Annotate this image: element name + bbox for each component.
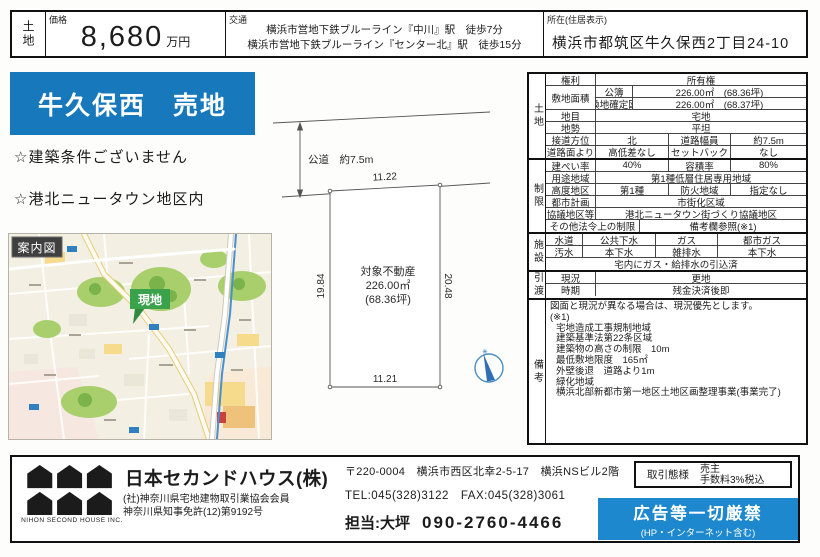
ad-prohibition-banner: 広告等一切厳禁 (HP・インターネット含む) (598, 498, 798, 540)
lot-center-text: 対象不動産 226.00㎡ (68.36坪) (361, 264, 416, 306)
other-restrictions-value: 備考欄参照(※1) (640, 220, 806, 232)
row-road-level: 道路面より 高低差なし セットバック なし (546, 146, 806, 158)
city-planning-value: 市街化区域 (596, 196, 806, 207)
row-sewage: 汚水 本下水 雑排水 本下水 (546, 246, 806, 258)
row-road-facing: 接道方位 北 道路幅員 約7.5m (546, 134, 806, 146)
row-land-category: 地目 宅地 (546, 110, 806, 122)
group-handover: 引渡 現況 更地 時期 残金決済後即 (529, 272, 806, 300)
remark-item: 外壁後退 道路より1m (550, 367, 802, 378)
contact-person: 担当:大坪 (345, 512, 410, 533)
row-height-district: 高度地区 第1種 防火地域 指定なし (546, 184, 806, 196)
area-map: 現地 案内図 (8, 233, 272, 440)
company-logo-icon (24, 465, 119, 515)
registry-label: 公簿 (596, 86, 633, 97)
row-utilities-note: 宅内にガス・給排水の引込済 (546, 258, 806, 270)
access-cell: 交通 横浜市営地下鉄ブルーライン『中川』駅 徒歩7分 横浜市営地下鉄ブルーライン… (226, 12, 544, 56)
zoning-value: 第1種低層住居専用地域 (596, 172, 806, 183)
row-rights: 権利 所有権 (546, 74, 806, 86)
price-cell: 価格 8,680万円 (46, 12, 226, 56)
council-district-value: 港北ニュータウン街づくり協議地区 (596, 208, 806, 219)
site-area-registry-row: 公簿 226.00㎡ (68.36坪) (596, 86, 806, 98)
row-terrain: 地勢 平坦 (546, 122, 806, 134)
contact-row: 担当:大坪 090-2760-4466 (345, 512, 563, 533)
map-illustration: 現地 案内図 (9, 234, 271, 439)
dim-right: 20.48 (442, 273, 453, 298)
rights-value: 所有権 (596, 74, 806, 85)
far-label: 容積率 (669, 160, 731, 171)
replot-label: 換地確定図 (596, 98, 633, 110)
row-handover-time: 時期 残金決済後即 (546, 284, 806, 296)
road-width-label2: 道路幅員 (669, 134, 731, 145)
price-value: 8,680 (81, 21, 164, 53)
road-width-label: 公道 約7.5m (308, 153, 374, 166)
replot-value: 226.00㎡ (68.37坪) (633, 98, 806, 110)
far-value: 80% (731, 160, 806, 171)
group-facilities-label: 施設 (529, 234, 546, 270)
setback-label: セットバック (669, 146, 731, 158)
deal-type-value: 売主 (700, 464, 790, 475)
deal-fee: 手数料3%税込 (700, 475, 790, 486)
tel-fax: TEL:045(328)3122 FAX:045(328)3061 (345, 487, 565, 503)
compass-north-mark: ✳ (482, 348, 488, 356)
fire-zone-value: 指定なし (731, 184, 806, 195)
company-address: 〒220-0004 横浜市西区北幸2-5-17 横浜NSビル2階 (345, 463, 619, 479)
deal-type-box: 取引態様 売主 手数料3%税込 (634, 461, 792, 488)
group-remarks: 備考 図面と現況が異なる場合は、現況優先とします。 (※1) 宅地造成工事規制地… (529, 300, 806, 443)
coverage-label: 建ぺい率 (546, 160, 596, 171)
dim-bottom: 11.21 (373, 374, 398, 385)
license-number: 神奈川県知事免許(12)第9192号 (123, 507, 290, 520)
handover-time-value: 残金決済後即 (596, 284, 806, 296)
location-label: 所在(住居表示) (547, 13, 607, 26)
lot-name: 対象不動産 (361, 264, 416, 278)
site-area-label: 敷地面積 (546, 86, 596, 109)
land-category-value: 宅地 (596, 110, 806, 121)
row-site-area: 敷地面積 公簿 226.00㎡ (68.36坪) 換地確定図 226.00㎡ (… (546, 86, 806, 110)
water-label: 水道 (546, 234, 583, 245)
height-district-label: 高度地区 (546, 184, 596, 195)
road-facing-label: 接道方位 (546, 134, 596, 145)
sewage-value: 本下水 (583, 246, 656, 257)
group-remarks-label: 備考 (529, 300, 546, 443)
road-width-value: 約7.5m (731, 134, 806, 145)
other-restrictions-label: その他法令上の制限 (546, 220, 640, 232)
road-level-value: 高低差なし (596, 146, 669, 158)
sewage-label: 汚水 (546, 246, 583, 257)
rights-label: 権利 (546, 74, 596, 85)
water-value: 公共下水 (583, 234, 656, 245)
property-details-table: 土地 権利 所有権 敷地面積 公簿 226.00㎡ (68.36坪) 換地確定図 (527, 72, 808, 445)
road-facing-value: 北 (596, 134, 669, 145)
company-name: 日本セカンドハウス(株) (125, 465, 328, 491)
handover-time-label: 時期 (546, 284, 596, 296)
coverage-value: 40% (596, 160, 669, 171)
map-title-label: 案内図 (17, 240, 56, 255)
drainage-value: 本下水 (718, 246, 806, 257)
row-zoning: 用途地域 第1種低層住居専用地域 (546, 172, 806, 184)
remarks-priority-note: 図面と現況が異なる場合は、現況優先とします。 (550, 302, 802, 313)
group-land: 土地 権利 所有権 敷地面積 公簿 226.00㎡ (68.36坪) 換地確定図 (529, 74, 806, 160)
summary-bar: 土地 価格 8,680万円 交通 横浜市営地下鉄ブルーライン『中川』駅 徒歩7分… (10, 10, 808, 58)
compass-icon: ✳ (475, 348, 503, 382)
utilities-note: 宅内にガス・給排水の引込済 (546, 258, 806, 270)
ad-prohibition-sub: (HP・インターネット含む) (641, 525, 756, 539)
location-value: 横浜市都筑区牛久保西2丁目24-10 (552, 32, 789, 53)
ad-prohibition-title: 広告等一切厳禁 (633, 500, 763, 524)
current-state-value: 更地 (596, 272, 806, 283)
current-state-label: 現況 (546, 272, 596, 283)
site-area-replot-row: 換地確定図 226.00㎡ (68.37坪) (596, 98, 806, 110)
sale-title-banner: 牛久保西 売地 (10, 72, 255, 135)
membership-line-1: (社)神奈川県宅地建物取引業協会会員 (123, 494, 290, 507)
group-restrictions: 制限 建ぺい率 40% 容積率 80% 用途地域 第1種低層住居専用地域 高度地… (529, 160, 806, 234)
company-logo-caption: NIHON SECOND HOUSE INC. (16, 517, 128, 524)
drainage-label: 雑排水 (656, 246, 718, 257)
remarks-body: 図面と現況が異なる場合は、現況優先とします。 (※1) 宅地造成工事規制地域 建… (546, 300, 806, 443)
remark-item: 横浜北部新都市第一地区土地区画整理事業(事業完了) (550, 388, 802, 399)
access-line-1: 横浜市営地下鉄ブルーライン『中川』駅 徒歩7分 (226, 23, 543, 38)
road-level-label: 道路面より (546, 146, 596, 158)
remarks-ref: (※1) (550, 313, 802, 324)
gas-value: 都市ガス (718, 234, 806, 245)
gas-label: ガス (656, 234, 718, 245)
row-water: 水道 公共下水 ガス 都市ガス (546, 234, 806, 246)
site-marker-label: 現地 (138, 292, 162, 307)
deal-type-label: 取引態様 (636, 467, 700, 482)
flyer-page: 土地 価格 8,680万円 交通 横浜市営地下鉄ブルーライン『中川』駅 徒歩7分… (0, 0, 820, 557)
agency-footer: NIHON SECOND HOUSE INC. 日本セカンドハウス(株) (社)… (10, 455, 800, 543)
contact-phone: 090-2760-4466 (422, 513, 563, 533)
row-coverage: 建ぺい率 40% 容積率 80% (546, 160, 806, 172)
lot-area-sqm: 226.00㎡ (366, 279, 411, 292)
terrain-label: 地勢 (546, 122, 596, 133)
land-category-label: 地目 (546, 110, 596, 121)
registry-value: 226.00㎡ (68.36坪) (633, 86, 806, 97)
height-district-value: 第1種 (596, 184, 669, 195)
lot-diagram: 公道 約7.5m 11.22 11.21 19.84 20.48 対象不動産 2… (268, 68, 520, 400)
location-cell: 所在(住居表示) 横浜市都筑区牛久保西2丁目24-10 (544, 12, 806, 56)
lot-area-tsubo: (68.36坪) (365, 293, 411, 306)
selling-point-1: ☆建築条件ございません (14, 146, 188, 167)
property-category: 土地 (12, 12, 46, 56)
zoning-label: 用途地域 (546, 172, 596, 183)
row-other-restrictions: その他法令上の制限 備考欄参照(※1) (546, 220, 806, 232)
group-restrictions-label: 制限 (529, 160, 546, 232)
dim-left: 19.84 (316, 273, 327, 298)
access-line-2: 横浜市営地下鉄ブルーライン『センター北』駅 徒歩15分 (226, 38, 543, 53)
group-handover-label: 引渡 (529, 272, 546, 298)
group-facilities: 施設 水道 公共下水 ガス 都市ガス 汚水 本下水 雑排水 本下水 宅内にガス・… (529, 234, 806, 272)
terrain-value: 平坦 (596, 122, 806, 133)
price-unit: 万円 (166, 35, 190, 49)
setback-value: なし (731, 146, 806, 158)
row-city-planning: 都市計画 市街化区域 (546, 196, 806, 208)
group-land-label: 土地 (529, 74, 546, 158)
fire-zone-label: 防火地域 (669, 184, 731, 195)
row-council-district: 協議地区等 港北ニュータウン街づくり協議地区 (546, 208, 806, 220)
dim-top: 11.22 (372, 171, 397, 183)
selling-point-2: ☆港北ニュータウン地区内 (14, 188, 204, 209)
city-planning-label: 都市計画 (546, 196, 596, 207)
row-current-state: 現況 更地 (546, 272, 806, 284)
council-district-label: 協議地区等 (546, 208, 596, 219)
